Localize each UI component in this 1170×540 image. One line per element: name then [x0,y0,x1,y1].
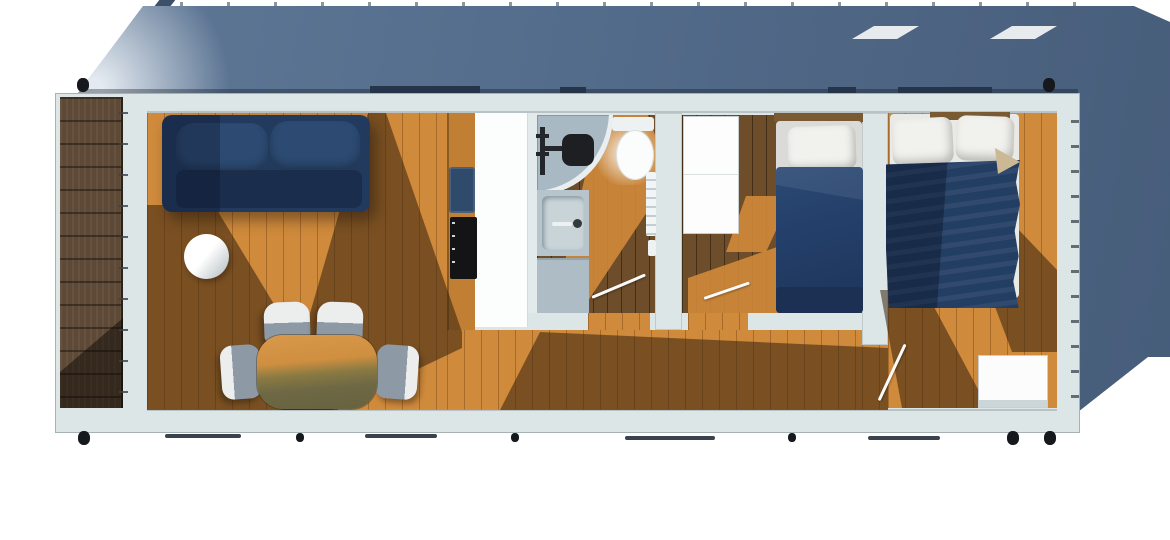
bottom-wall-seam [147,409,1057,411]
towel-radiator [646,172,656,236]
induction-cooktop [450,217,477,279]
wardrobe [684,117,738,233]
single-bed-footboard [776,287,863,313]
double-bed-duvet [886,160,1020,308]
single-bed-pillow [787,125,856,171]
bathroom-left-wall [528,113,537,330]
duvet-wrinkles [886,160,1020,308]
base-rail [165,434,241,438]
base-rail [365,434,437,438]
roof-ridge-ticks [180,2,1120,7]
bathroom-door-gap [588,313,650,330]
faucet-stub [552,222,572,226]
porch-deck [60,97,123,408]
kitchen-countertop [475,113,528,327]
corner-casting-knob [78,431,90,445]
bathroom-cabinet [537,258,589,313]
sofa-shaded-end [162,115,220,212]
floor-plan-render [0,0,1170,540]
hallway-floor [447,330,888,410]
top-wall-seam [147,111,1057,113]
toilet-tank [612,117,654,131]
chimney-vent-icon [151,0,176,11]
shower-bar-tick [536,134,549,138]
corner-casting-knob [1044,431,1056,445]
base-rail [625,436,715,440]
kitchen-sink [449,167,475,213]
shower-bar-tick [536,152,549,156]
sofa-back-cushion [270,121,360,171]
master-door-gap [862,345,888,410]
dresser-base [979,400,1047,407]
faucet-knob [573,219,582,228]
corner-casting-knob [1043,78,1055,92]
bathroom-bedroom-wall [655,113,682,330]
cooktop-knobs [452,222,455,274]
bedroom1-door-gap [688,313,748,330]
foundation-dot [788,433,796,442]
foundation-dot [511,433,519,442]
duvet-shaded-half [886,160,1020,308]
shower-head [562,134,594,166]
base-rail [868,436,940,440]
corner-casting-knob [1007,431,1019,445]
double-bed-pillow [891,116,954,166]
double-bed-pillow [955,115,1015,162]
foundation-dot [296,433,304,442]
bedroom-divider-wall [862,113,888,345]
rear-window-bar [370,86,480,93]
right-wall-ticks [1071,120,1079,404]
dresser [978,355,1048,408]
dining-table [257,335,377,409]
dining-chair [374,344,420,401]
wardrobe-seam [684,174,738,175]
corner-casting-knob [77,78,89,92]
radiator-stub [648,240,656,256]
deck-joist-ticks [119,112,128,400]
round-side-table [184,234,229,279]
